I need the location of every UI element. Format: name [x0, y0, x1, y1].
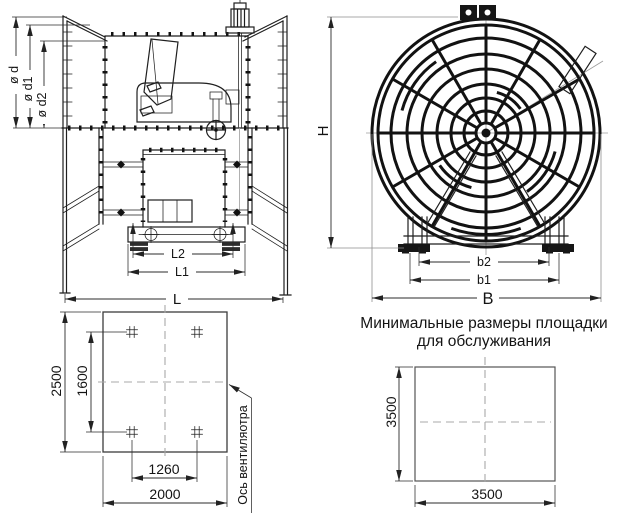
dim-label-H: H [315, 126, 332, 137]
fan-drawing: ø d ø d1 ø d2 L2 L1 L [0, 0, 637, 516]
motor-shaft [239, 33, 242, 127]
front-view-lifting-lugs [460, 5, 496, 20]
dim-1260: 1260 [132, 440, 197, 482]
dim-label-L: L [173, 291, 181, 308]
fan-axis-label: Ось вентиляотра [236, 405, 250, 504]
anchor-bolt-symbol [143, 227, 159, 243]
dim-label-d: ø d [7, 66, 21, 84]
anchor-bolt-symbol [212, 227, 228, 243]
beam-bolt-diamonds [117, 161, 241, 217]
dim-label-d1: ø d1 [21, 76, 35, 101]
fan-axis-leader: Ось вентиляотра [229, 385, 252, 514]
side-view-impeller-assembly [137, 39, 239, 122]
service-platform-dimensions: 3500 3500 [383, 367, 555, 507]
dim-diameter-d: ø d [7, 17, 21, 128]
dim-b2: b2 [419, 247, 549, 269]
dim-diameter-d1: ø d1 [21, 25, 35, 128]
front-view [366, 5, 608, 256]
diagonal-braces [63, 186, 287, 251]
dim-label-2000: 2000 [149, 486, 180, 502]
dim-diameter-d2: ø d2 [35, 41, 49, 128]
side-view-handwheel [207, 92, 226, 140]
service-platform-title-line1: Минимальные размеры площадки [360, 315, 607, 332]
foundation-plan [98, 305, 228, 458]
service-platform-title-line2: для обслуживания [417, 333, 551, 350]
dim-label-2500: 2500 [48, 365, 64, 396]
hub [482, 129, 491, 138]
dim-label-b1: b1 [477, 273, 491, 287]
dim-label-1600: 1600 [74, 365, 90, 396]
technical-drawing-sheet: ø d ø d1 ø d2 L2 L1 L [0, 0, 637, 516]
dim-L: L [65, 290, 283, 308]
dim-label-3500-h: 3500 [471, 486, 502, 502]
dim-label-B: B [482, 290, 493, 308]
service-platform-centerlines [420, 357, 551, 487]
wall-stiffeners [63, 32, 287, 116]
dim-label-d2: ø d2 [35, 92, 49, 117]
dim-label-L2: L2 [171, 247, 185, 261]
dim-label-L1: L1 [175, 265, 189, 279]
dim-label-b2: b2 [477, 255, 491, 269]
front-view-grille [372, 19, 600, 247]
foundation-plan-dimensions: 2500 1600 1260 2000 Ось вентиляотра [48, 312, 252, 513]
dim-label-1260: 1260 [148, 461, 179, 477]
dim-label-3500-v: 3500 [383, 396, 399, 427]
dim-3500-vertical: 3500 [383, 367, 413, 481]
side-view-motor [226, 0, 254, 127]
dim-3500-horizontal: 3500 [415, 485, 555, 507]
foundation-centerlines [98, 305, 228, 458]
